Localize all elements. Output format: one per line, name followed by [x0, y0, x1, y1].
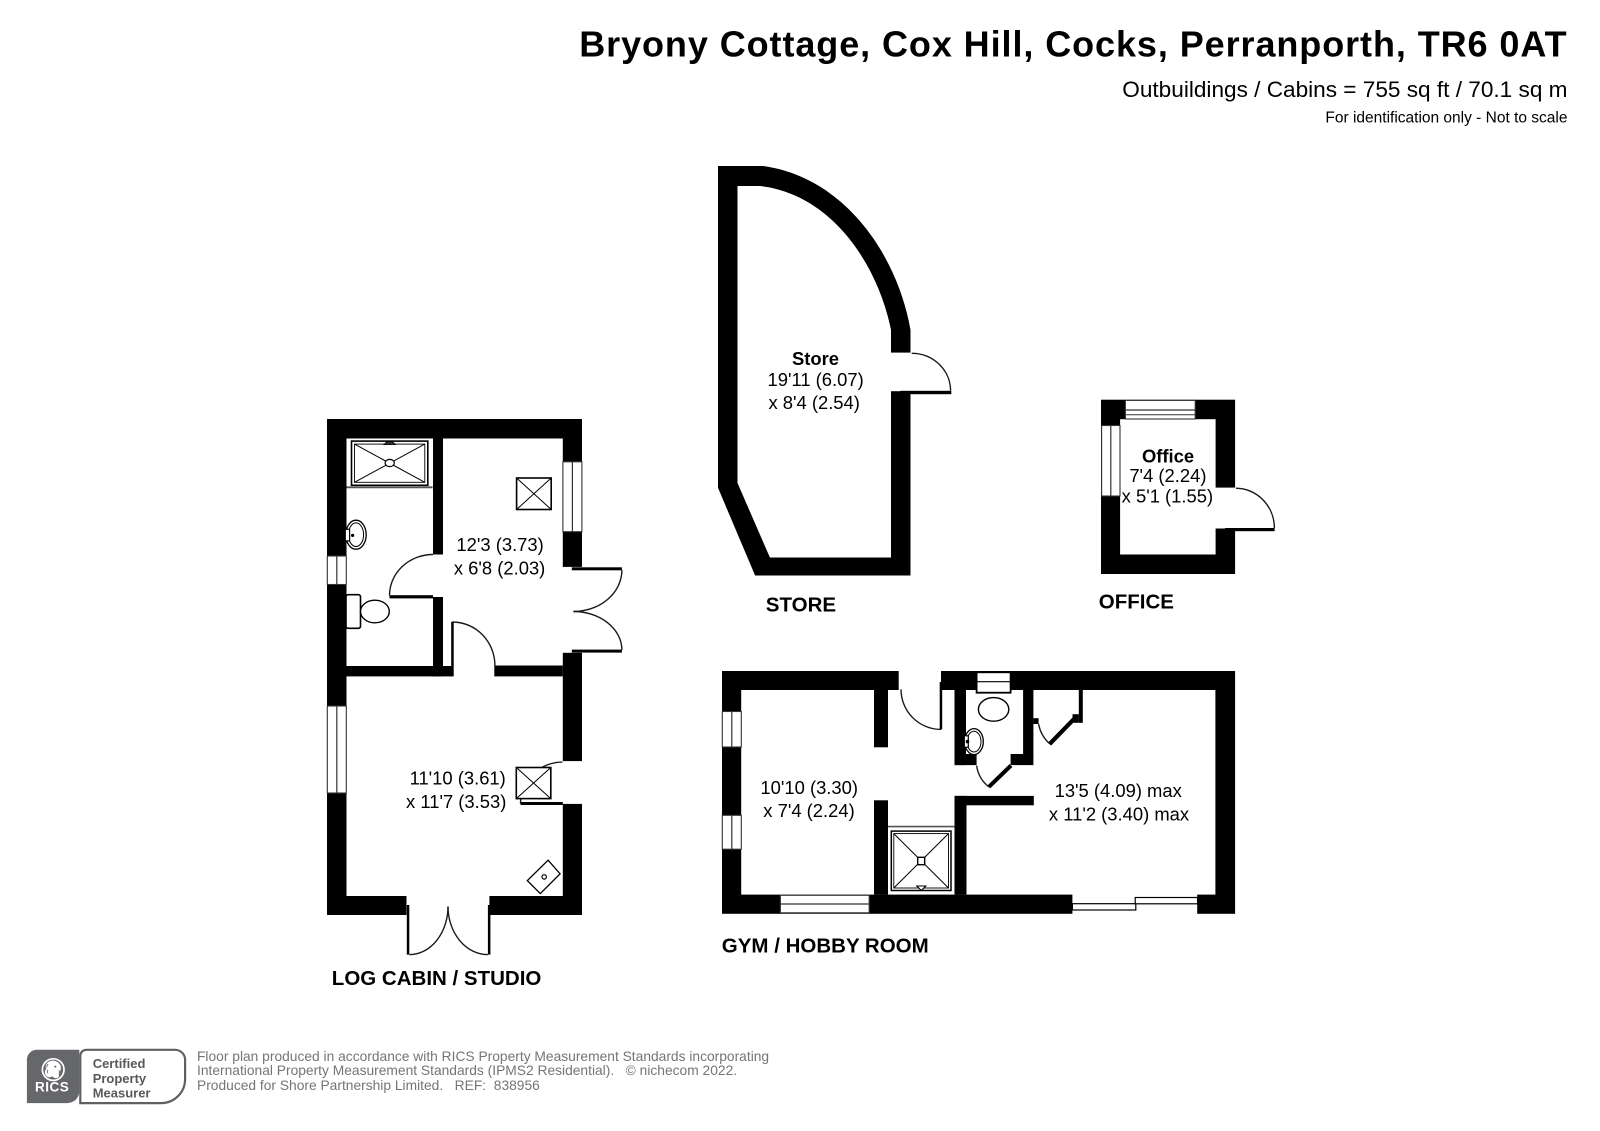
- svg-text:13'5 (4.09) max: 13'5 (4.09) max: [1055, 780, 1182, 801]
- svg-text:Store: Store: [792, 348, 839, 369]
- svg-text:7'4 (2.24): 7'4 (2.24): [1129, 465, 1206, 486]
- svg-text:Floor plan produced in accorda: Floor plan produced in accordance with R…: [197, 1049, 769, 1064]
- svg-text:10'10 (3.30): 10'10 (3.30): [760, 777, 858, 798]
- svg-text:Bryony Cottage, Cox Hill, Cock: Bryony Cottage, Cox Hill, Cocks, Perranp…: [579, 24, 1567, 65]
- svg-text:x 7'4 (2.24): x 7'4 (2.24): [763, 800, 854, 821]
- svg-text:x 8'4 (2.54): x 8'4 (2.54): [768, 392, 859, 413]
- svg-text:x 6'8 (2.03): x 6'8 (2.03): [454, 558, 545, 579]
- svg-text:19'11 (6.07): 19'11 (6.07): [767, 369, 863, 390]
- svg-text:Office: Office: [1142, 446, 1194, 467]
- svg-text:Outbuildings / Cabins = 755 sq: Outbuildings / Cabins = 755 sq ft / 70.1…: [1122, 77, 1567, 102]
- svg-text:x 11'2 (3.40) max: x 11'2 (3.40) max: [1049, 804, 1189, 825]
- svg-text:RICS: RICS: [35, 1080, 69, 1095]
- svg-text:x 11'7 (3.53): x 11'7 (3.53): [406, 791, 506, 812]
- svg-text:International Property Measure: International Property Measurement Stand…: [197, 1063, 737, 1078]
- svg-text:12'3 (3.73): 12'3 (3.73): [456, 534, 543, 555]
- svg-text:LOG CABIN / STUDIO: LOG CABIN / STUDIO: [332, 967, 542, 990]
- svg-text:For identification only - Not: For identification only - Not to scale: [1325, 110, 1567, 127]
- svg-text:STORE: STORE: [766, 593, 836, 616]
- svg-text:x 5'1 (1.55): x 5'1 (1.55): [1122, 485, 1213, 506]
- svg-text:Certified: Certified: [93, 1056, 146, 1071]
- svg-text:OFFICE: OFFICE: [1099, 591, 1174, 614]
- svg-text:Produced for Shore Partnership: Produced for Shore Partnership Limited. …: [197, 1078, 540, 1093]
- svg-text:GYM / HOBBY ROOM: GYM / HOBBY ROOM: [722, 934, 929, 957]
- svg-text:11'10 (3.61): 11'10 (3.61): [410, 768, 506, 789]
- svg-text:Property: Property: [93, 1071, 147, 1086]
- svg-text:Measurer: Measurer: [93, 1085, 151, 1100]
